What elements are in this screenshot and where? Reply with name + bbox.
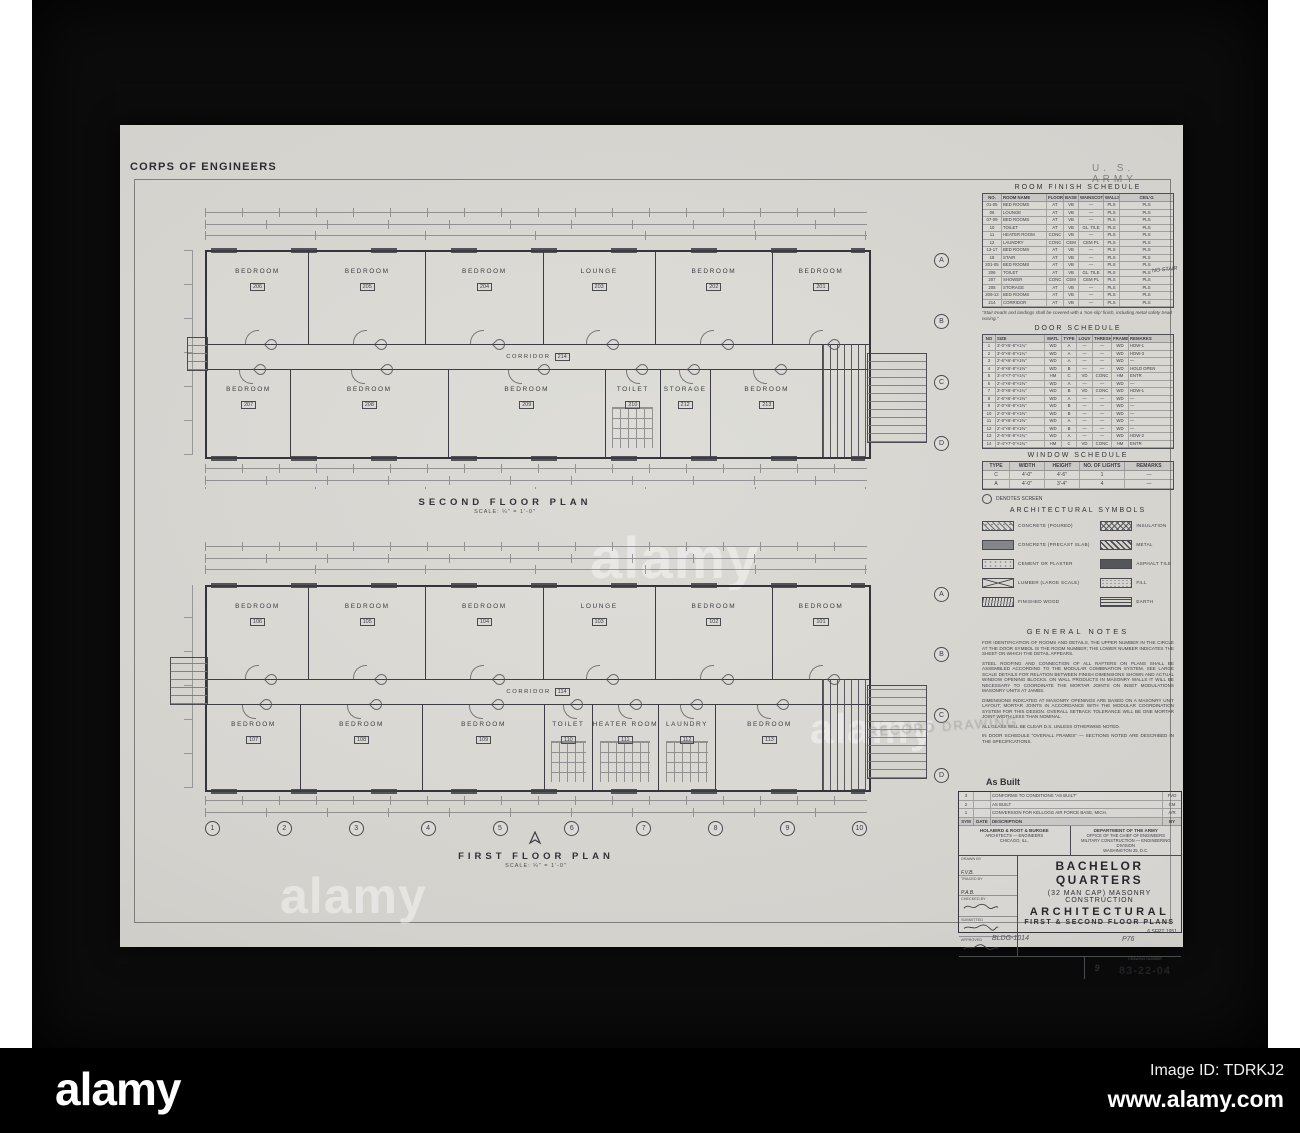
room-number: 105 xyxy=(360,618,375,626)
general-note-paragraph: FOR IDENTIFICATION OF ROOMS AND DETAILS,… xyxy=(982,640,1174,657)
discipline-title: ARCHITECTURAL xyxy=(1018,906,1181,918)
room-cell: BEDROOM 202 xyxy=(655,252,772,344)
symbol-swatch-icon xyxy=(982,559,1014,569)
general-notes-title: GENERAL NOTES xyxy=(982,627,1174,636)
room-number: 113 xyxy=(762,736,777,744)
room-cell: BEDROOM 106 xyxy=(207,587,308,679)
room-cell: BEDROOM 113 xyxy=(715,705,823,790)
table-row: 214CORRIDORATVB—PLSPLS xyxy=(983,300,1173,308)
symbol-label: FILL xyxy=(1136,580,1146,585)
room-name: BEDROOM xyxy=(309,268,425,275)
revision-header: SYMDATEDESCRIPTIONBY xyxy=(959,818,1181,827)
table-row: 208STORAGEATVB—PLSPLS xyxy=(983,285,1173,293)
grid-bubble: D xyxy=(934,436,949,451)
table-rows: 13′-0″×6′-8″×1¾″WDA——WDHDW-1 23′-0″×6′-8… xyxy=(983,343,1173,448)
room-name: TOILET xyxy=(545,721,592,728)
room-cell: BEDROOM 209 xyxy=(448,370,605,457)
drawn-by-stub: DRAWN BY F.V.B. xyxy=(959,856,1017,876)
symbol-label: CEMENT OR PLASTER xyxy=(1018,561,1073,566)
sheet-titles: BACHELOR QUARTERS (32 MAN CAP) MASONRY C… xyxy=(1018,856,1181,956)
symbol-swatch-icon xyxy=(982,597,1014,607)
symbol-swatch-icon xyxy=(982,578,1014,588)
table-row: 53′-4″×7′-0″×1¾″HMCVDCONCHMENTR xyxy=(983,373,1173,381)
room-cell: BEDROOM 207 xyxy=(207,370,290,457)
door-swing-icon xyxy=(753,370,767,384)
symbol-item: CONCRETE (POURED) xyxy=(982,516,1092,535)
second-floor-caption: SECOND FLOOR PLAN SCALE: ¼″ = 1′-0″ xyxy=(205,497,805,515)
table-row: 206TOILETATVBGL. TILEPLSPLS xyxy=(983,270,1173,278)
room-cell: BEDROOM 205 xyxy=(308,252,425,344)
room-cell: BEDROOM 108 xyxy=(300,705,422,790)
symbol-label: INSULATION xyxy=(1136,523,1166,528)
north-arrow-icon xyxy=(524,831,546,845)
room-name: BEDROOM xyxy=(711,386,823,393)
room-cell: BEDROOM 213 xyxy=(710,370,823,457)
plan-title: FIRST FLOOR PLAN xyxy=(205,851,867,862)
symbol-item: METAL xyxy=(1100,535,1174,554)
room-name: BEDROOM xyxy=(423,721,544,728)
symbol-item: FILL xyxy=(1100,573,1174,592)
door-swing-icon xyxy=(351,370,365,384)
grid-letter-bubbles: ABCD xyxy=(934,587,949,783)
corridor: CORRIDOR 214 xyxy=(207,344,869,370)
photo-frame: CORPS OF ENGINEERS U. S. ARMY alamy alam… xyxy=(32,0,1268,1048)
room-name: STORAGE xyxy=(661,386,710,393)
signature-icon xyxy=(961,902,1001,911)
table-row: 62′-4″×6′-8″×1⅜″WDA——WD— xyxy=(983,381,1173,389)
table-row: 07-09BED ROOMSATVB—PLSPLS xyxy=(983,217,1173,225)
grid-bubble: 4 xyxy=(421,821,436,836)
symbol-swatch-icon xyxy=(1100,559,1132,569)
room-number: 206 xyxy=(250,283,265,291)
approval-box xyxy=(959,957,1085,979)
door-swing-icon xyxy=(680,705,694,719)
door-swing-icon xyxy=(586,665,600,679)
door-swing-icon xyxy=(586,330,600,344)
door-swing-icon xyxy=(809,330,823,344)
schedules-panel: NO STAIR ROOM FINISH SCHEDULE NO.ROOM NA… xyxy=(982,181,1174,748)
symbol-item: EARTH xyxy=(1100,592,1174,611)
table-row: 06LOUNGEATVB—PLSPLS xyxy=(983,210,1173,218)
as-built-label: As Built xyxy=(986,777,1020,787)
room-number: 103 xyxy=(592,618,607,626)
room-cell: BEDROOM 206 xyxy=(207,252,308,344)
table-row: 201-05BED ROOMSATVB—PLSPLS xyxy=(983,262,1173,270)
grid-bubble: 3 xyxy=(349,821,364,836)
table-row: 92′-0″×6′-8″×1⅜″WDB——WD— xyxy=(983,403,1173,411)
drawing-number-label: DRAWING NUMBER xyxy=(1109,957,1181,961)
door-swing-icon xyxy=(469,705,483,719)
window-schedule-table: TYPEWIDTHHEIGHTNO. OF LIGHTSREMARKS C4′-… xyxy=(982,461,1174,490)
room-number: 210 xyxy=(625,401,640,409)
table-header: TYPEWIDTHHEIGHTNO. OF LIGHTSREMARKS xyxy=(983,462,1173,471)
door-swing-icon xyxy=(239,370,253,384)
room-name: BEDROOM xyxy=(426,603,542,610)
room-cell: BEDROOM 102 xyxy=(655,587,772,679)
revision-row: 3CONFORMS TO CONDITIONS “AS BUILT”FVD xyxy=(959,792,1181,801)
room-name: BEDROOM xyxy=(291,386,447,393)
corridor: CORRIDOR 114 xyxy=(207,679,869,705)
room-number: 109 xyxy=(476,736,491,744)
plan-title: SECOND FLOOR PLAN xyxy=(205,497,805,508)
room-name: BEDROOM xyxy=(773,603,869,610)
door-swing-icon xyxy=(700,665,714,679)
image-id: Image ID: TDRKJ2 xyxy=(1108,1062,1284,1080)
symbol-item: INSULATION xyxy=(1100,516,1174,535)
table-row: 12LAUNDRYCONCCEMCEM PLPLSPLS xyxy=(983,240,1173,248)
door-swing-icon xyxy=(700,330,714,344)
room-number: 205 xyxy=(360,283,375,291)
symbol-label: ASPHALT TILE xyxy=(1136,561,1171,566)
dimension-lines-bottom xyxy=(205,793,867,819)
room-name: BEDROOM xyxy=(773,268,869,275)
grid-bubble: 1 xyxy=(205,821,220,836)
room-name: HEATER ROOM xyxy=(593,721,659,728)
first-floor-building: BEDROOM 106 BEDROOM 105 BEDROOM xyxy=(205,585,871,792)
table-row: 13-17BED ROOMSATVB—PLSPLS xyxy=(983,247,1173,255)
room-cell: LOUNGE 103 xyxy=(543,587,655,679)
door-swing-icon xyxy=(353,330,367,344)
room-band-bottom: BEDROOM 107 BEDROOM 108 BEDROOM xyxy=(207,705,823,790)
signature-icon xyxy=(961,943,1001,952)
symbol-label: CONCRETE (PRECAST SLAB) xyxy=(1018,542,1090,547)
room-name: BEDROOM xyxy=(301,721,422,728)
drawing-sheet: CORPS OF ENGINEERS U. S. ARMY alamy alam… xyxy=(120,125,1183,947)
room-number: 111 xyxy=(618,736,632,744)
room-number: 208 xyxy=(362,401,377,409)
symbol-item: ASPHALT TILE xyxy=(1100,554,1174,573)
symbol-swatch-icon xyxy=(982,540,1014,550)
alamy-watermark-bar: alamy Image ID: TDRKJ2 www.alamy.com xyxy=(0,1048,1300,1133)
door-swing-icon xyxy=(353,665,367,679)
table-rows: C4′-0″4′-6″1— A4′-0″3′-4″4— xyxy=(983,471,1173,489)
grid-bubble: 8 xyxy=(708,821,723,836)
room-name: BEDROOM xyxy=(207,386,290,393)
symbol-label: LUMBER (LARGE SCALE) xyxy=(1018,580,1079,585)
grid-bubble: D xyxy=(934,768,949,783)
room-name: BEDROOM xyxy=(426,268,542,275)
room-cell: TOILET 110 xyxy=(544,705,592,790)
grid-bubble: 6 xyxy=(564,821,579,836)
traced-by-stub: TRACED BY P.A.B. xyxy=(959,876,1017,896)
door-swing-icon xyxy=(470,665,484,679)
table-header: NO.ROOM NAMEFLOORBASEWAINSCOTWALLSCEIL’G xyxy=(983,194,1173,202)
room-number: 106 xyxy=(250,618,265,626)
door-swing-icon xyxy=(626,370,640,384)
corridor-number: 114 xyxy=(555,688,570,696)
room-finish-title: ROOM FINISH SCHEDULE xyxy=(982,184,1174,191)
room-name: BEDROOM xyxy=(207,721,300,728)
room-cell: BEDROOM 201 xyxy=(772,252,869,344)
symbol-item: CONCRETE (PRECAST SLAB) xyxy=(982,535,1092,554)
room-cell: TOILET 210 xyxy=(605,370,660,457)
screen-note: DENOTES SCREEN xyxy=(982,494,1174,504)
room-name: BEDROOM xyxy=(656,268,772,275)
table-row: 11HEATER ROOMCONCVB—PLSPLS xyxy=(983,232,1173,240)
room-cell: LAUNDRY 112 xyxy=(658,705,715,790)
sheet-date: 6 SEPT 1951 xyxy=(1018,929,1177,935)
alamy-url: www.alamy.com xyxy=(1108,1086,1284,1113)
room-cell: BEDROOM 105 xyxy=(308,587,425,679)
door-swing-icon xyxy=(809,665,823,679)
window-schedule-title: WINDOW SCHEDULE xyxy=(982,452,1174,459)
symbol-swatch-icon xyxy=(1100,597,1132,607)
room-name: BEDROOM xyxy=(207,268,308,275)
symbol-item: CEMENT OR PLASTER xyxy=(982,554,1092,573)
drawing-number: 83-22-04 xyxy=(1119,965,1171,977)
sheet-title: FIRST & SECOND FLOOR PLANS xyxy=(1018,919,1181,926)
room-name: BEDROOM xyxy=(207,603,308,610)
symbol-label: EARTH xyxy=(1136,599,1153,604)
room-number: 203 xyxy=(592,283,607,291)
table-row: 01-05BED ROOMSATVB—PLSPLS xyxy=(983,202,1173,210)
grid-bubble: B xyxy=(934,314,949,329)
table-row: 42′-6″×6′-8″×1⅜″WDB——WDHOLD OPEN xyxy=(983,366,1173,374)
finish-footnote: “Stair treads and landings shall be cove… xyxy=(982,310,1174,321)
room-cell: HEATER ROOM 111 xyxy=(592,705,659,790)
room-cell: LOUNGE 203 xyxy=(543,252,655,344)
room-band-bottom: BEDROOM 207 BEDROOM 208 BEDROOM xyxy=(207,370,823,457)
firm-blocks: HOLABIRD & ROOT & BURGEE ARCHITECTS — EN… xyxy=(959,826,1181,856)
table-row: 143′-4″×7′-0″×1¾″HMCVDCONCHMENTR xyxy=(983,441,1173,449)
table-row: 132′-6″×6′-8″×1¾″WDA——WDHDW-2 xyxy=(983,433,1173,441)
table-row: 102′-0″×6′-8″×1⅜″WDB——WD— xyxy=(983,411,1173,419)
project-subtitle: (32 MAN CAP) MASONRY CONSTRUCTION xyxy=(1018,890,1181,904)
grid-bubble: 5 xyxy=(493,821,508,836)
table-row: 122′-4″×6′-8″×1⅜″WDB——WD— xyxy=(983,426,1173,434)
table-row: 18STAIRATVB—PLSPLS xyxy=(983,255,1173,263)
table-row: 32′-6″×6′-8″×1⅜″WDA——WD— xyxy=(983,358,1173,366)
room-number: 102 xyxy=(706,618,721,626)
dimension-lines-bottom xyxy=(205,461,867,489)
room-finish-table: NO.ROOM NAMEFLOORBASEWAINSCOTWALLSCEIL’G… xyxy=(982,193,1174,308)
door-swing-icon xyxy=(618,705,632,719)
door-swing-icon xyxy=(347,705,361,719)
symbols-legend: CONCRETE (POURED) CONCRETE (PRECAST SLAB… xyxy=(982,516,1174,611)
screen-note-label: DENOTES SCREEN xyxy=(996,496,1042,502)
room-cell: BEDROOM 107 xyxy=(207,705,300,790)
table-row: 73′-0″×6′-8″×1¾″WDBVDCONCWDHDW-1 xyxy=(983,388,1173,396)
room-number: 202 xyxy=(706,283,721,291)
grid-bubble: 2 xyxy=(277,821,292,836)
room-name: BEDROOM xyxy=(656,603,772,610)
room-name: BEDROOM xyxy=(449,386,605,393)
plan-scale: SCALE: ¼″ = 1′-0″ xyxy=(205,863,867,869)
architect-block: HOLABIRD & ROOT & BURGEE ARCHITECTS — EN… xyxy=(959,826,1070,855)
grid-bubble: C xyxy=(934,375,949,390)
room-number: 207 xyxy=(241,401,256,409)
table-row: 112′-8″×6′-8″×1⅜″WDA——WD— xyxy=(983,418,1173,426)
room-cell: BEDROOM 104 xyxy=(425,587,542,679)
room-name: LAUNDRY xyxy=(659,721,715,728)
door-swing-icon xyxy=(679,370,693,384)
grid-bubble: A xyxy=(934,587,949,602)
room-number: 108 xyxy=(354,736,369,744)
dimension-lines-top xyxy=(205,205,867,243)
grid-bubble: B xyxy=(934,647,949,662)
stair xyxy=(822,344,869,457)
room-cell: BEDROOM 204 xyxy=(425,252,542,344)
second-floor-building: BEDROOM 206 BEDROOM 205 BEDROOM xyxy=(205,250,871,459)
room-band-top: BEDROOM 206 BEDROOM 205 BEDROOM xyxy=(207,252,869,344)
table-row: C4′-0″4′-6″1— xyxy=(983,471,1173,480)
symbol-item: FINISHED WOOD xyxy=(982,592,1092,611)
door-swing-icon xyxy=(470,330,484,344)
room-number: 201 xyxy=(813,283,828,291)
room-number: 101 xyxy=(813,618,828,626)
table-row: 209-13BED ROOMSATVB—PLSPLS xyxy=(983,292,1173,300)
symbol-label: FINISHED WOOD xyxy=(1018,599,1059,604)
table-row: 23′-0″×6′-8″×1¾″WDA——WDHDW-3 xyxy=(983,351,1173,359)
symbol-swatch-icon xyxy=(1100,521,1132,531)
room-number: 212 xyxy=(678,401,693,409)
room-number: 110 xyxy=(561,736,576,744)
symbols-title: ARCHITECTURAL SYMBOLS xyxy=(982,507,1174,514)
room-cell: BEDROOM 101 xyxy=(772,587,869,679)
door-schedule-title: DOOR SCHEDULE xyxy=(982,325,1174,332)
revision-row: 1CONVERSION FOR KELLOGG AIR FORCE BASE, … xyxy=(959,809,1181,818)
room-name: BEDROOM xyxy=(309,603,425,610)
symbol-swatch-icon xyxy=(1100,578,1132,588)
general-note-paragraph: STEEL ROOFING AND CONNECTION OF ALL RAFT… xyxy=(982,661,1174,694)
room-number: 107 xyxy=(246,736,261,744)
room-number: 213 xyxy=(759,401,774,409)
grid-letter-bubbles: ABCD xyxy=(934,253,949,451)
room-name: TOILET xyxy=(606,386,660,393)
grid-bubble: 10 xyxy=(852,821,867,836)
handwritten-bldg: BLDG-1014 xyxy=(992,935,1029,942)
room-cell: BEDROOM 208 xyxy=(290,370,447,457)
room-number: 209 xyxy=(519,401,534,409)
table-row: 207SHOWERCONCCEMCEM PLPLSPLS xyxy=(983,277,1173,285)
door-swing-icon xyxy=(242,705,256,719)
room-number: 204 xyxy=(477,283,492,291)
screen-circle-icon xyxy=(982,494,992,504)
agency-block: DEPARTMENT OF THE ARMY OFFICE OF THE CHI… xyxy=(1070,826,1182,855)
table-header: NOSIZEMATLTYPELOUVTHRESHFRAMEREMARKS xyxy=(983,335,1173,343)
stair xyxy=(822,679,869,790)
corps-of-engineers-label: CORPS OF ENGINEERS xyxy=(130,161,277,173)
grid-bubble: A xyxy=(934,253,949,268)
revision-table: 3CONFORMS TO CONDITIONS “AS BUILT”FVD 2A… xyxy=(959,792,1181,818)
handwritten-p76: P76 xyxy=(1122,936,1134,943)
door-schedule-table: NOSIZEMATLTYPELOUVTHRESHFRAMEREMARKS 13′… xyxy=(982,334,1174,449)
table-row: 13′-0″×6′-8″×1¾″WDA——WDHDW-1 xyxy=(983,343,1173,351)
checked-by-stub: CHECKED BY xyxy=(959,896,1017,916)
drawing-number-box: 9 DRAWING NUMBER 83-22-04 xyxy=(1085,957,1181,979)
room-number: 112 xyxy=(680,736,695,744)
grid-bubble: 9 xyxy=(780,821,795,836)
entrance-platform xyxy=(170,657,208,705)
symbol-label: CONCRETE (POURED) xyxy=(1018,523,1073,528)
table-row: 82′-6″×6′-8″×1⅜″WDA——WD— xyxy=(983,396,1173,404)
grid-bubble: 7 xyxy=(636,821,651,836)
alamy-logo: alamy xyxy=(55,1062,180,1116)
title-block: 3CONFORMS TO CONDITIONS “AS BUILT”FVD 2A… xyxy=(958,791,1182,933)
first-floor-caption: FIRST FLOOR PLAN SCALE: ¼″ = 1′-0″ xyxy=(205,851,867,869)
sheet-number: 9 xyxy=(1085,963,1109,973)
general-note-paragraph: IN DOOR SCHEDULE “OVERALL FRAMES” — SECT… xyxy=(982,733,1174,744)
room-name: LOUNGE xyxy=(544,603,655,610)
plan-scale: SCALE: ¼″ = 1′-0″ xyxy=(205,509,805,515)
dimension-lines-top xyxy=(205,539,867,577)
symbol-label: METAL xyxy=(1136,542,1152,547)
door-swing-icon xyxy=(245,665,259,679)
symbol-swatch-icon xyxy=(1100,540,1132,550)
symbol-item: LUMBER (LARGE SCALE) xyxy=(982,573,1092,592)
door-swing-icon xyxy=(508,370,522,384)
room-band-top: BEDROOM 106 BEDROOM 105 BEDROOM xyxy=(207,587,869,679)
room-cell: BEDROOM 109 xyxy=(422,705,544,790)
project-title: BACHELOR QUARTERS xyxy=(1018,859,1181,887)
table-row: A4′-0″3′-4″4— xyxy=(983,480,1173,489)
fire-escape-landing xyxy=(187,337,208,371)
symbol-swatch-icon xyxy=(982,521,1014,531)
corridor-name: CORRIDOR xyxy=(506,689,550,695)
room-number: 104 xyxy=(477,618,492,626)
room-name: LOUNGE xyxy=(544,268,655,275)
exterior-stair xyxy=(867,353,927,443)
signature-icon xyxy=(961,923,1001,932)
corridor-number: 214 xyxy=(555,353,570,361)
revision-row: 2AS BUILTCM xyxy=(959,801,1181,810)
room-name: BEDROOM xyxy=(716,721,823,728)
corridor-name: CORRIDOR xyxy=(506,354,550,360)
door-swing-icon xyxy=(563,705,577,719)
door-swing-icon xyxy=(245,330,259,344)
door-swing-icon xyxy=(757,705,771,719)
submitted-stub: SUBMITTED xyxy=(959,917,1017,937)
table-rows: 01-05BED ROOMSATVB—PLSPLS 06LOUNGEATVB—P… xyxy=(983,202,1173,307)
room-cell: STORAGE 212 xyxy=(660,370,710,457)
table-row: 10TOILETATVBGL. TILEPLSPLS xyxy=(983,225,1173,233)
